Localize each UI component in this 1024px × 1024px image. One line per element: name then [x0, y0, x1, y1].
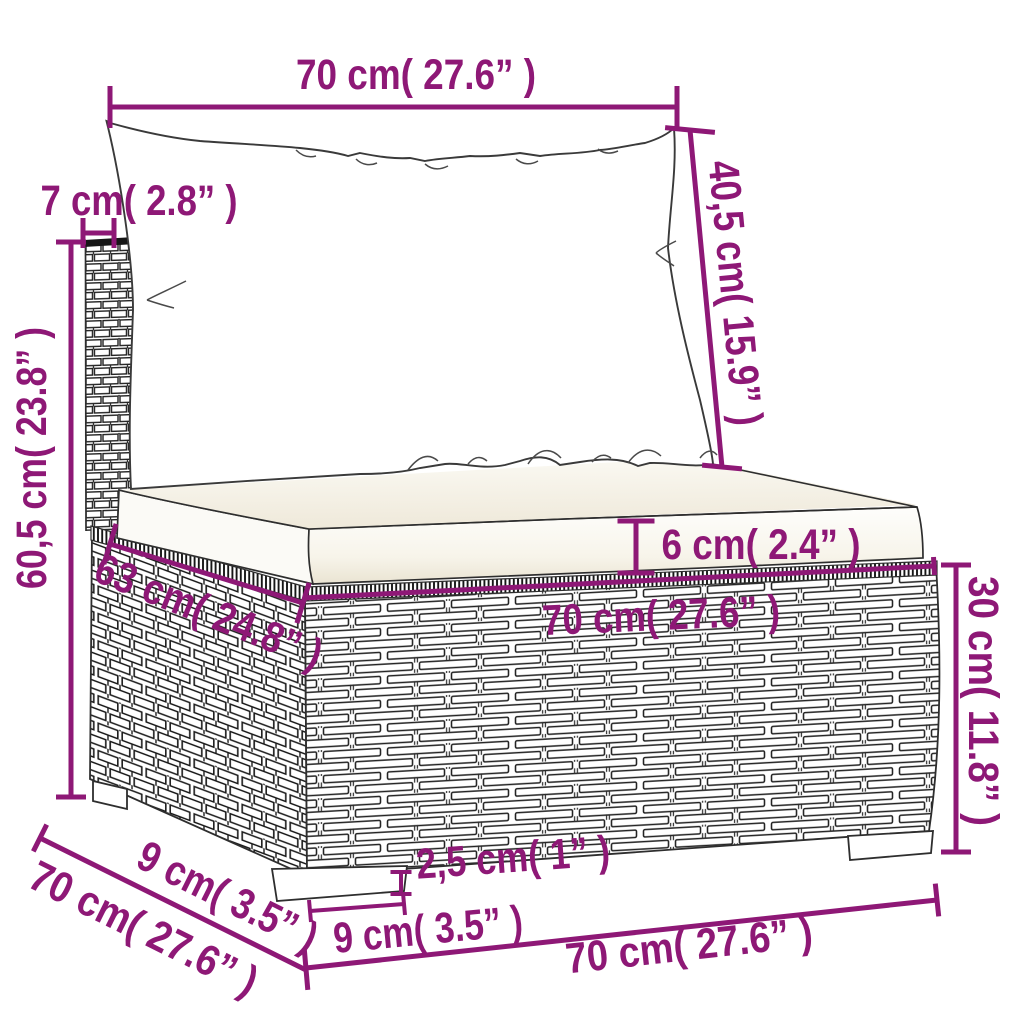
svg-text:30 cm( 11.8” ): 30 cm( 11.8” ) — [959, 576, 1007, 826]
svg-text:60,5 cm( 23.8” ): 60,5 cm( 23.8” ) — [8, 327, 56, 589]
svg-text:70 cm( 27.6” ): 70 cm( 27.6” ) — [296, 51, 536, 99]
svg-text:6 cm( 2.4” ): 6 cm( 2.4” ) — [662, 521, 861, 569]
svg-text:7 cm( 2.8” ): 7 cm( 2.8” ) — [41, 177, 238, 225]
